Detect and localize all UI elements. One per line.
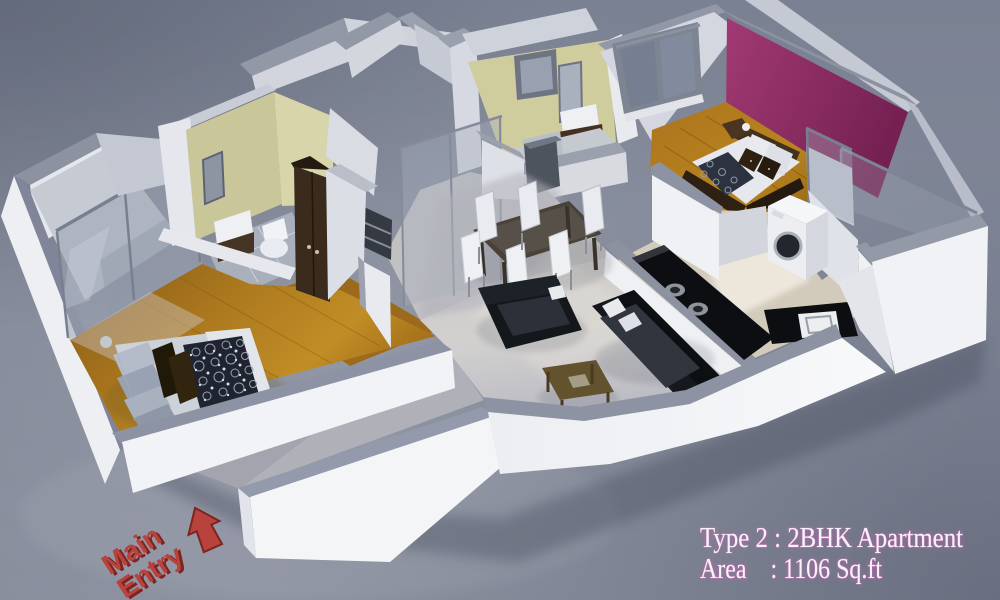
svg-text:Type 2 : 2BHK Apartment: Type 2 : 2BHK Apartment [700,522,963,554]
svg-text:Area : 1106 Sq.ft: Area : 1106 Sq.ft [700,553,882,585]
